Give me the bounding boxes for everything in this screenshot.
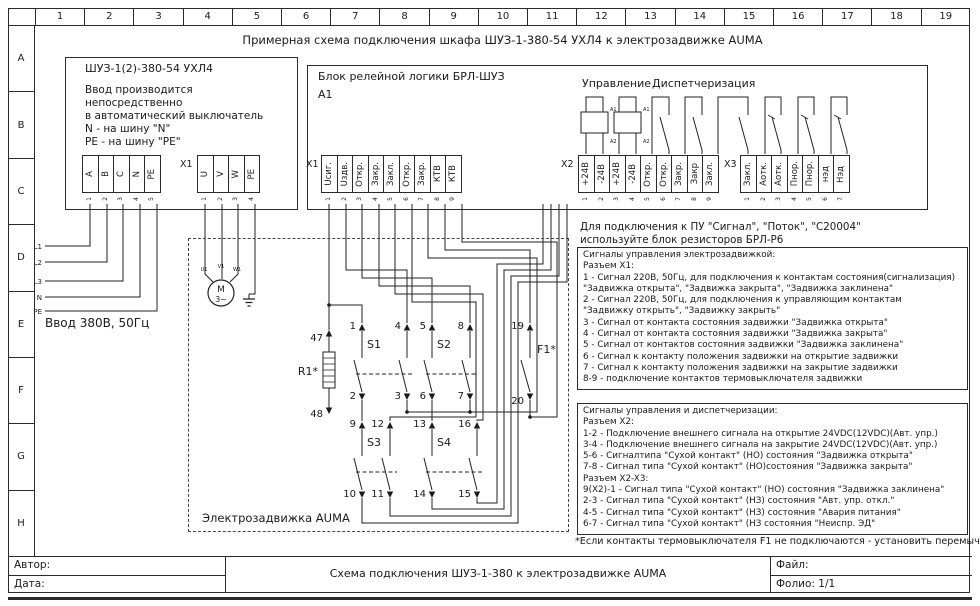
terminal-label-text: Откр. <box>660 162 669 187</box>
terminal-Нэд-7: Нэд7 <box>833 155 850 204</box>
terminal-label-text: Откр. <box>644 162 653 187</box>
ruler-row-C: C <box>8 158 34 224</box>
terminal-label: +24В <box>578 155 595 193</box>
terminal-label: Закр <box>687 155 704 193</box>
terminal-pin-number: 3 <box>118 197 124 201</box>
terminal-PE-5: PE5 <box>144 155 161 204</box>
note-line: 1-2 - Подключение внешнего сигнала на от… <box>583 429 962 440</box>
terminal-label: Откр. <box>399 155 416 193</box>
terminal-label-text: А <box>86 171 95 177</box>
terminal-label-text: PE <box>148 169 157 180</box>
terminal-Закр-8: Закр8 <box>687 155 704 204</box>
terminal-label: PE <box>144 155 161 193</box>
terminal-С-3: С3 <box>113 155 130 204</box>
cabinet-note-line2: непосредственно <box>85 97 263 110</box>
terminal-label-text: W <box>232 170 241 178</box>
terminal-label: V <box>213 155 230 193</box>
cabinet-title: ШУЗ-1(2)-380-54 УХЛ4 <box>85 62 213 75</box>
terminal-label: -24В <box>594 155 611 193</box>
terminal-pin-number: 2 <box>342 197 348 201</box>
terminal-label-text: V <box>217 171 226 177</box>
terminal-label-text: +24В <box>613 162 622 186</box>
terminal-pin-number: 5 <box>149 197 155 201</box>
terminal-label-text: Закр. <box>675 162 684 186</box>
note-line: "Задвижка открыта", "Задвижка закрыта", … <box>583 284 962 295</box>
terminal-pin-number: 1 <box>87 197 93 201</box>
x2-x3-signals-note: Сигналы управления и диспетчеризации: Ра… <box>577 403 968 535</box>
terminal-Закр.-4: Закр.4 <box>368 155 385 204</box>
terminal-pin: 3 <box>233 193 239 204</box>
terminal-pin: 1 <box>583 193 589 204</box>
terminal-pin: 7 <box>676 193 682 204</box>
terminal-pin: 3 <box>357 193 363 204</box>
terminal-label: +24В <box>609 155 626 193</box>
terminal-Откр.-6: Откр.6 <box>399 155 416 204</box>
sheet-bottom-rule <box>8 597 972 600</box>
terminal-pin: 5 <box>645 193 651 204</box>
terminal-Uсиг.-1: Uсиг.1 <box>321 155 338 204</box>
ruler-row-B: B <box>8 91 34 157</box>
note-line: 1 - Сигнал 220В, 50Гц, для подключения к… <box>583 273 962 284</box>
terminal-label: -24В <box>625 155 642 193</box>
note-line: 9(X2)-1 - Сигнал типа "Сухой контакт" (Н… <box>583 485 962 496</box>
terminal-pin-number: 9 <box>450 197 456 201</box>
terminal-label-text: Нэд <box>837 166 846 183</box>
terminal-label: С <box>113 155 130 193</box>
terminal-label: КТВ <box>430 155 447 193</box>
terminal-pin-number: 3 <box>357 197 363 201</box>
terminal-pin: 2 <box>599 193 605 204</box>
terminal-+24В-3: +24В3 <box>609 155 626 204</box>
ruler-col-16: 16 <box>773 8 822 25</box>
ruler-col-12: 12 <box>576 8 625 25</box>
terminal-pin-number: 4 <box>630 197 636 201</box>
terminal-Пнор.-4: Пнор.4 <box>787 155 804 204</box>
terminal-label: Uсиг. <box>321 155 338 193</box>
terminal-pin-number: 6 <box>823 197 829 201</box>
note-line: 6-7 - Сигнал типа "Сухой контакт" (НЗ со… <box>583 519 962 530</box>
ruler-col-11: 11 <box>527 8 576 25</box>
terminal-label-text: Откр. <box>356 162 365 187</box>
ruler-row-A: A <box>8 26 34 91</box>
terminal-label: Аотк. <box>756 155 773 193</box>
terminal-pin-number: 1 <box>326 197 332 201</box>
terminal-label: Нэд <box>833 155 850 193</box>
ruler-col-19: 19 <box>921 8 970 25</box>
terminal-pin: 5 <box>807 193 813 204</box>
ruler-col-14: 14 <box>675 8 724 25</box>
terminal-W-3: W3 <box>228 155 245 204</box>
terminal-label: Откр. <box>352 155 369 193</box>
terminal-А-1: А1 <box>82 155 99 204</box>
note-line: Разъем X2-X3: <box>583 474 962 485</box>
terminal-PE-4: PE4 <box>244 155 261 204</box>
terminal-pin: 2 <box>103 193 109 204</box>
terminal-Закр.-7: Закр.7 <box>414 155 431 204</box>
terminal-pin-number: 7 <box>419 197 425 201</box>
terminal-pin: 4 <box>630 193 636 204</box>
ruler-rows: ABCDEFGH <box>8 26 35 556</box>
terminal-нэд-6: нэд6 <box>818 155 835 204</box>
terminal--24В-4: -24В4 <box>625 155 642 204</box>
note-line: 5-6 - Сигналтипа "Сухой контакт" (НО) со… <box>583 451 962 462</box>
pu-note-line1: Для подключения к ПУ "Сигнал", "Поток", … <box>580 221 861 234</box>
terminal-label: В <box>98 155 115 193</box>
pu-note: Для подключения к ПУ "Сигнал", "Поток", … <box>580 221 861 247</box>
terminal-label-text: С <box>117 171 126 177</box>
terminal-label: U <box>197 155 214 193</box>
terminal-pin-number: 5 <box>388 197 394 201</box>
titleblock-title: Схема подключения ШУЗ-1-380 к электрозад… <box>226 567 770 580</box>
ruler-col-7: 7 <box>330 8 379 25</box>
terminal-pin: 6 <box>404 193 410 204</box>
terminal-pin-number: 4 <box>249 197 255 201</box>
terminal-label-text: -24В <box>598 164 607 184</box>
terminal-label: PE <box>244 155 261 193</box>
terminal-label-text: Пнор. <box>791 161 800 186</box>
terminal-strip-input: А1В2С3N4PE5 <box>82 155 161 204</box>
terminal-label-text: Закл. <box>744 162 753 186</box>
ruler-row-F: F <box>8 357 34 423</box>
terminal-label-text: Закл. <box>387 162 396 186</box>
terminal-pin-number: 2 <box>218 197 224 201</box>
terminal-pin: 5 <box>388 193 394 204</box>
terminal-Закл.-5: Закл.5 <box>383 155 400 204</box>
note-line: 2 - Сигнал 220В, 50Гц, для подключения к… <box>583 295 962 306</box>
terminal-pin: 4 <box>792 193 798 204</box>
terminal-label-text: N <box>133 171 142 177</box>
terminal-label: Откр. <box>640 155 657 193</box>
control-caption: Управление <box>582 77 651 90</box>
terminal-label: КТВ <box>445 155 462 193</box>
terminal-strip-brl-x1: Uсиг.1Uздв.2Откр.3Закр.4Закл.5Откр.6Закр… <box>321 155 462 204</box>
terminal-label: Закр. <box>368 155 385 193</box>
terminal-pin: 1 <box>326 193 332 204</box>
note-line: 4-5 - Сигнал типа "Сухой контакт" (НЗ) с… <box>583 508 962 519</box>
terminal-pin: 3 <box>118 193 124 204</box>
ruler-col-4: 4 <box>183 8 232 25</box>
note-line: Разъем X2: <box>583 417 962 428</box>
jumper-footnote: *Если контакты термовыключателя F1 не по… <box>575 536 980 547</box>
connector-x1-brl-label: X1 <box>306 159 319 170</box>
terminal-label: N <box>129 155 146 193</box>
cabinet-note-line5: PE - на шину "PE" <box>85 136 263 149</box>
ruler-row-H: H <box>8 490 34 556</box>
terminal-pin: 2 <box>761 193 767 204</box>
tit-line-top <box>8 556 972 557</box>
terminal-pin-number: 1 <box>202 197 208 201</box>
terminal-label: Закл. <box>383 155 400 193</box>
terminal-pin: 6 <box>661 193 667 204</box>
terminal-label: Uздв. <box>337 155 354 193</box>
terminal-label-text: Закр. <box>418 162 427 186</box>
terminal-pin-number: 2 <box>761 197 767 201</box>
terminal-pin-number: 8 <box>435 197 441 201</box>
terminal-label-text: В <box>102 171 111 177</box>
terminal-pin-number: 2 <box>103 197 109 201</box>
terminal-pin-number: 5 <box>807 197 813 201</box>
brl-title: Блок релейной логики БРЛ-ШУЗ <box>318 70 505 83</box>
terminal-+24В-1: +24В1 <box>578 155 595 204</box>
terminal-label-text: Закр. <box>372 162 381 186</box>
note-line: 6 - Сигнал к контакту положения задвижки… <box>583 352 962 363</box>
ruler-col-17: 17 <box>822 8 871 25</box>
dispatch-caption: Диспетчеризация <box>652 77 755 90</box>
cabinet-note: Ввод производится непосредственно в авто… <box>85 84 263 149</box>
terminal-pin-number: 3 <box>776 197 782 201</box>
terminal-label-text: Аотк. <box>760 162 769 186</box>
terminal-U-1: U1 <box>197 155 214 204</box>
terminal-pin: 4 <box>373 193 379 204</box>
terminal-КТВ-9: КТВ9 <box>445 155 462 204</box>
terminal-label: Закл. <box>702 155 719 193</box>
terminal-pin: 7 <box>838 193 844 204</box>
note-line: Разъем X1: <box>583 261 962 272</box>
terminal-pin: 3 <box>614 193 620 204</box>
ruler-col-13: 13 <box>625 8 674 25</box>
note-line: 3 - Сигнал от контакта состояния задвижк… <box>583 318 962 329</box>
terminal-label: Закр. <box>414 155 431 193</box>
terminal-pin: 1 <box>745 193 751 204</box>
terminal--24В-2: -24В2 <box>594 155 611 204</box>
ruler-col-6: 6 <box>281 8 330 25</box>
ruler-col-2: 2 <box>84 8 133 25</box>
terminal-label-text: нэд <box>822 166 831 182</box>
terminal-V-2: V2 <box>213 155 230 204</box>
terminal-Пнор.-5: Пнор.5 <box>802 155 819 204</box>
terminal-pin-number: 5 <box>645 197 651 201</box>
terminal-label: нэд <box>818 155 835 193</box>
tit-vline-2 <box>770 556 771 593</box>
terminal-label-text: +24В <box>582 162 591 186</box>
terminal-label-text: -24В <box>629 164 638 184</box>
terminal-Закл.-1: Закл.1 <box>740 155 757 204</box>
terminal-Откр.-6: Откр.6 <box>656 155 673 204</box>
terminal-label: Закр. <box>671 155 688 193</box>
terminal-pin: 1 <box>87 193 93 204</box>
terminal-label-text: КТВ <box>434 165 443 182</box>
terminal-Закр.-7: Закр.7 <box>671 155 688 204</box>
ruler-col-1: 1 <box>35 8 84 25</box>
ruler-col-3: 3 <box>133 8 182 25</box>
ruler-col-15: 15 <box>724 8 773 25</box>
note-line: 7 - Сигнал к контакту положения задвижки… <box>583 363 962 374</box>
terminal-pin-number: 7 <box>676 197 682 201</box>
terminal-label-text: Uсиг. <box>325 162 334 186</box>
terminal-pin: 3 <box>776 193 782 204</box>
ruler-col-9: 9 <box>429 8 478 25</box>
cabinet-note-line4: N - на шину "N" <box>85 123 263 136</box>
terminal-pin: 2 <box>342 193 348 204</box>
terminal-label: Аотк. <box>771 155 788 193</box>
terminal-label-text: Откр. <box>403 162 412 187</box>
titleblock-file: Файл: <box>776 559 809 571</box>
titleblock-date: Дата: <box>14 578 45 590</box>
terminal-pin-number: 4 <box>373 197 379 201</box>
terminal-pin: 2 <box>218 193 224 204</box>
titleblock-author: Автор: <box>14 559 50 571</box>
terminal-Uздв.-2: Uздв.2 <box>337 155 354 204</box>
note-line: 4 - Сигнал от контакта состояния задвижк… <box>583 329 962 340</box>
terminal-pin: 1 <box>202 193 208 204</box>
terminal-Откр.-3: Откр.3 <box>352 155 369 204</box>
connector-x2-label: X2 <box>561 159 574 170</box>
ruler-col-10: 10 <box>478 8 527 25</box>
ruler-row-D: D <box>8 224 34 290</box>
titleblock-folio: Фолио: 1/1 <box>776 578 835 590</box>
terminal-pin-number: 6 <box>661 197 667 201</box>
terminal-КТВ-8: КТВ8 <box>430 155 447 204</box>
ruler-corner <box>8 8 35 26</box>
terminal-pin: 7 <box>419 193 425 204</box>
terminal-В-2: В2 <box>98 155 115 204</box>
terminal-N-4: N4 <box>129 155 146 204</box>
terminal-pin-number: 9 <box>707 197 713 201</box>
terminal-label-text: Закл. <box>706 162 715 186</box>
terminal-pin: 8 <box>435 193 441 204</box>
terminal-label-text: Закр <box>691 163 700 184</box>
terminal-pin: 9 <box>707 193 713 204</box>
terminal-pin-number: 3 <box>614 197 620 201</box>
ruler-col-18: 18 <box>871 8 920 25</box>
connector-x1-motor-label: X1 <box>180 159 193 170</box>
terminal-pin: 4 <box>134 193 140 204</box>
terminal-label: Закл. <box>740 155 757 193</box>
terminal-pin: 8 <box>692 193 698 204</box>
terminal-pin-number: 2 <box>599 197 605 201</box>
terminal-pin-number: 8 <box>692 197 698 201</box>
terminal-pin-number: 7 <box>838 197 844 201</box>
terminal-label: Пнор. <box>802 155 819 193</box>
terminal-label-text: Uздв. <box>341 162 350 186</box>
note-line: 7-8 - Сигнал типа "Сухой контакт" (НО)со… <box>583 462 962 473</box>
terminal-label: А <box>82 155 99 193</box>
tit-line-right-mid <box>770 575 972 576</box>
terminal-pin-number: 6 <box>404 197 410 201</box>
x1-signals-note: Сигналы управления электрозадвижкой: Раз… <box>577 247 968 390</box>
terminal-pin: 9 <box>450 193 456 204</box>
terminal-strip-x3: Закл.1Аотк.2Аотк.3Пнор.4Пнор.5нэд6Нэд7 <box>740 155 850 204</box>
ruler-row-G: G <box>8 423 34 489</box>
terminal-Аотк.-3: Аотк.3 <box>771 155 788 204</box>
terminal-pin: 4 <box>249 193 255 204</box>
note-line: 2-3 - Сигнал типа "Сухой контакт" (НЗ) с… <box>583 496 962 507</box>
terminal-pin-number: 1 <box>745 197 751 201</box>
note-line: 8-9 - подключение контактов термовыключа… <box>583 374 962 385</box>
terminal-pin: 5 <box>149 193 155 204</box>
actuator-caption: Электрозадвижка AUMA <box>202 511 350 525</box>
note-line: "Задвижку открыть", "Задвижку закрыть" <box>583 306 962 317</box>
ruler-col-8: 8 <box>379 8 428 25</box>
ruler-row-E: E <box>8 291 34 357</box>
terminal-label-text: КТВ <box>449 165 458 182</box>
tit-line-left-mid <box>8 575 225 576</box>
schematic-sheet: L1 L2 L3 N PE M 3~ U1 V1 W1 <box>0 0 980 606</box>
terminal-label-text: PE <box>248 169 257 180</box>
connector-x3-label: X3 <box>724 159 737 170</box>
terminal-Откр.-5: Откр.5 <box>640 155 657 204</box>
terminal-pin-number: 3 <box>233 197 239 201</box>
terminal-label: Откр. <box>656 155 673 193</box>
terminal-strip-x1-motor: U1V2W3PE4 <box>197 155 260 204</box>
mains-caption: Ввод 380В, 50Гц <box>45 316 149 330</box>
terminal-label-text: U <box>201 171 210 177</box>
terminal-pin: 6 <box>823 193 829 204</box>
terminal-label-text: Пнор. <box>806 161 815 186</box>
note-line: 3-4 - Подключение внешнего сигнала на за… <box>583 440 962 451</box>
brl-ref: А1 <box>318 88 333 101</box>
terminal-pin-number: 1 <box>583 197 589 201</box>
note-line: 5 - Сигнал от контактов состояния задвиж… <box>583 340 962 351</box>
note-line: Сигналы управления электрозадвижкой: <box>583 250 962 261</box>
terminal-strip-x2: +24В1-24В2+24В3-24В4Откр.5Откр.6Закр.7За… <box>578 155 719 204</box>
terminal-Аотк.-2: Аотк.2 <box>756 155 773 204</box>
note-line: Сигналы управления и диспетчеризации: <box>583 406 962 417</box>
terminal-pin-number: 4 <box>134 197 140 201</box>
terminal-Закл.-9: Закл.9 <box>702 155 719 204</box>
terminal-pin-number: 4 <box>792 197 798 201</box>
actuator-boundary <box>188 238 569 532</box>
cabinet-note-line3: в автоматический выключатель <box>85 110 263 123</box>
page-title: Примерная схема подключения шкафа ШУЗ-1-… <box>35 33 970 47</box>
ruler-columns: 12345678910111213141516171819 <box>35 8 970 26</box>
pu-note-line2: используйте блок резисторов БРЛ-Р6 <box>580 234 861 247</box>
terminal-label: W <box>228 155 245 193</box>
cabinet-note-line1: Ввод производится <box>85 84 263 97</box>
terminal-label: Пнор. <box>787 155 804 193</box>
terminal-label-text: Аотк. <box>775 162 784 186</box>
ruler-col-5: 5 <box>232 8 281 25</box>
